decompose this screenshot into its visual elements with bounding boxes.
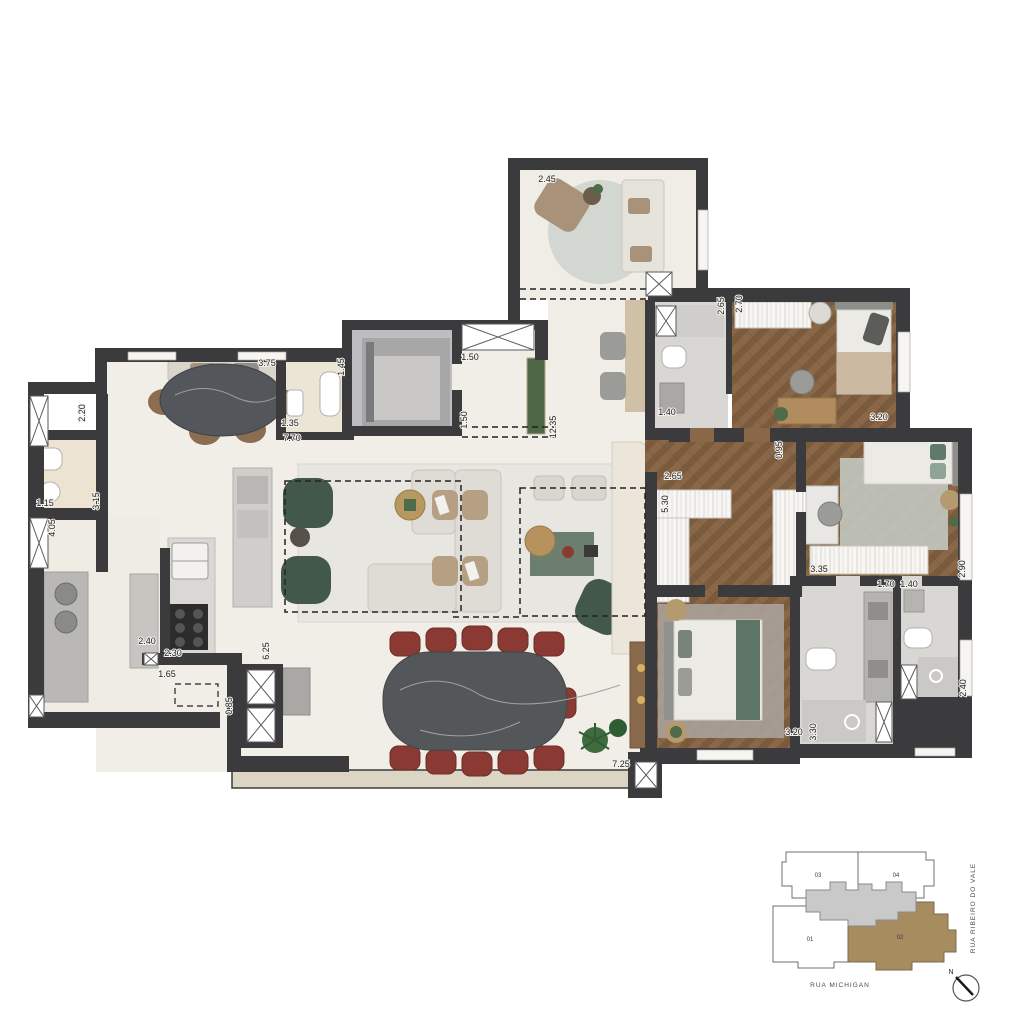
- bed2-pillow: [930, 444, 946, 460]
- breakfast-chair: [600, 372, 626, 400]
- dimension-label: 2.90: [957, 560, 967, 578]
- green-armchair: [281, 556, 331, 604]
- side-table: [290, 527, 310, 547]
- dimension-label: 1.40: [900, 579, 918, 589]
- dimension-label: 2.65: [716, 297, 726, 315]
- dimension-label: 1.50: [461, 352, 479, 362]
- dimension-label: 3.30: [808, 723, 818, 741]
- breakfast-chair: [600, 332, 626, 360]
- dimension-label: 1.65: [158, 669, 176, 679]
- den-plant: [593, 184, 603, 194]
- green-armchair: [283, 478, 333, 528]
- bed2-side-table: [940, 490, 960, 510]
- street-label-bottom: RUA MICHIGAN: [810, 982, 870, 989]
- floorplan-page: 2.453.751.451.501.5012.351.357.702.201.1…: [0, 0, 1024, 1024]
- table-chair: [534, 632, 564, 656]
- dimension-label: 1.15: [36, 498, 54, 508]
- bed1-rack: [809, 302, 831, 324]
- elevator-door: [366, 342, 374, 422]
- dimension-label: 1.40: [658, 407, 676, 417]
- dimension-label: 0.95: [774, 441, 784, 459]
- coffee-cabinet: [283, 668, 310, 715]
- washer: [55, 583, 77, 605]
- den-window: [698, 210, 708, 270]
- dining-window: [128, 352, 176, 360]
- floor-plan-svg: 2.453.751.451.501.5012.351.357.702.201.1…: [0, 0, 1024, 1024]
- bath-window: [915, 748, 955, 756]
- keyplan-unit-label: 01: [807, 937, 814, 943]
- table-chair: [462, 626, 492, 650]
- vertical-garden: [527, 358, 545, 434]
- dimension-label: 12.35: [548, 416, 558, 439]
- tv-console: [584, 545, 598, 557]
- island-appliance: [237, 476, 268, 504]
- dimension-label: 2.70: [734, 295, 744, 313]
- master-nightstand: [665, 599, 687, 621]
- island-appliance: [237, 510, 268, 538]
- hallbath-sink: [287, 390, 303, 416]
- pouf: [534, 476, 564, 500]
- dimension-label: 2.30: [164, 648, 182, 658]
- accent-chair: [462, 490, 488, 520]
- dimension-label: 1.45: [336, 358, 346, 376]
- dimension-label: 7.25: [612, 759, 630, 769]
- table-chair: [462, 752, 492, 776]
- dimension-label: 0.85: [224, 697, 234, 715]
- mbath-sink: [868, 660, 888, 678]
- hallbath-toilet: [320, 372, 340, 416]
- bed2-plant: [949, 517, 959, 527]
- dimension-label: 1.35: [281, 418, 299, 428]
- bed1-plant: [774, 407, 788, 421]
- dining-table: [160, 364, 284, 436]
- table-chair: [534, 746, 564, 770]
- dimension-label: 3.75: [258, 358, 276, 368]
- bed1-blanket: [837, 352, 891, 394]
- bath3-toilet: [904, 628, 932, 648]
- street-label-right: RUA RIBEIRO DO VALE: [970, 863, 977, 953]
- master-pillow: [678, 668, 692, 696]
- dimension-label: 3.20: [785, 727, 803, 737]
- accent-chair: [432, 556, 458, 586]
- bed1-wardrobe: [735, 302, 811, 328]
- dimension-label: 1.50: [459, 411, 469, 429]
- dimension-label: 2.40: [138, 636, 156, 646]
- keyplan-unit-label: 04: [893, 873, 900, 879]
- table-chair: [426, 750, 456, 774]
- table-chair: [498, 750, 528, 774]
- bath3-sink: [904, 590, 924, 612]
- table-chair: [498, 628, 528, 652]
- round-table: [525, 526, 555, 556]
- mbath-toilet: [806, 648, 836, 670]
- compass-needle: [956, 977, 973, 995]
- table-plant: [404, 499, 416, 511]
- dimension-label: 7.70: [283, 433, 301, 443]
- dimension-label: 2.40: [958, 679, 968, 697]
- dimension-label: 3.15: [91, 492, 101, 510]
- dimension-label: 1.70: [877, 579, 895, 589]
- compass: N: [948, 969, 979, 1001]
- dimension-label: 3.20: [870, 412, 888, 422]
- dimension-label: 2.65: [664, 471, 682, 481]
- master-window: [697, 750, 753, 760]
- dimension-label: 5.30: [660, 495, 670, 513]
- key-plan: 03 04 01 02 RUA RIBEIRO DO VALE RUA MICH…: [773, 852, 979, 1001]
- dryer: [55, 611, 77, 633]
- terrace-plant: [609, 719, 627, 737]
- den-cushion: [630, 246, 652, 262]
- dimension-label: 2.20: [77, 404, 87, 422]
- master-pillow: [678, 630, 692, 658]
- master-plant: [670, 726, 682, 738]
- bed1-chair: [790, 370, 814, 394]
- decor-bowl: [562, 546, 574, 558]
- dimension-label: 2.45: [538, 174, 556, 184]
- bath3-shower: [918, 657, 958, 697]
- mbath-sink: [868, 602, 888, 620]
- north-label: N: [948, 969, 953, 976]
- bedroom1-window: [898, 332, 910, 392]
- keyplan-unit-label: 02: [897, 935, 904, 941]
- master-headboard: [664, 622, 674, 720]
- master-runner: [736, 620, 760, 720]
- bath1-toilet: [662, 346, 686, 368]
- table-chair: [390, 746, 420, 770]
- elevator-cab: [374, 356, 440, 420]
- table-chair: [426, 628, 456, 652]
- dimension-label: 3.35: [810, 564, 828, 574]
- den-cushion: [628, 198, 650, 214]
- keyplan-unit-label: 03: [815, 873, 822, 879]
- dimension-label: 6.25: [261, 642, 271, 660]
- bed2-pillow: [930, 463, 946, 479]
- dimension-label: 4.05: [47, 519, 57, 537]
- bed2-chair: [818, 502, 842, 526]
- table-chair: [390, 632, 420, 656]
